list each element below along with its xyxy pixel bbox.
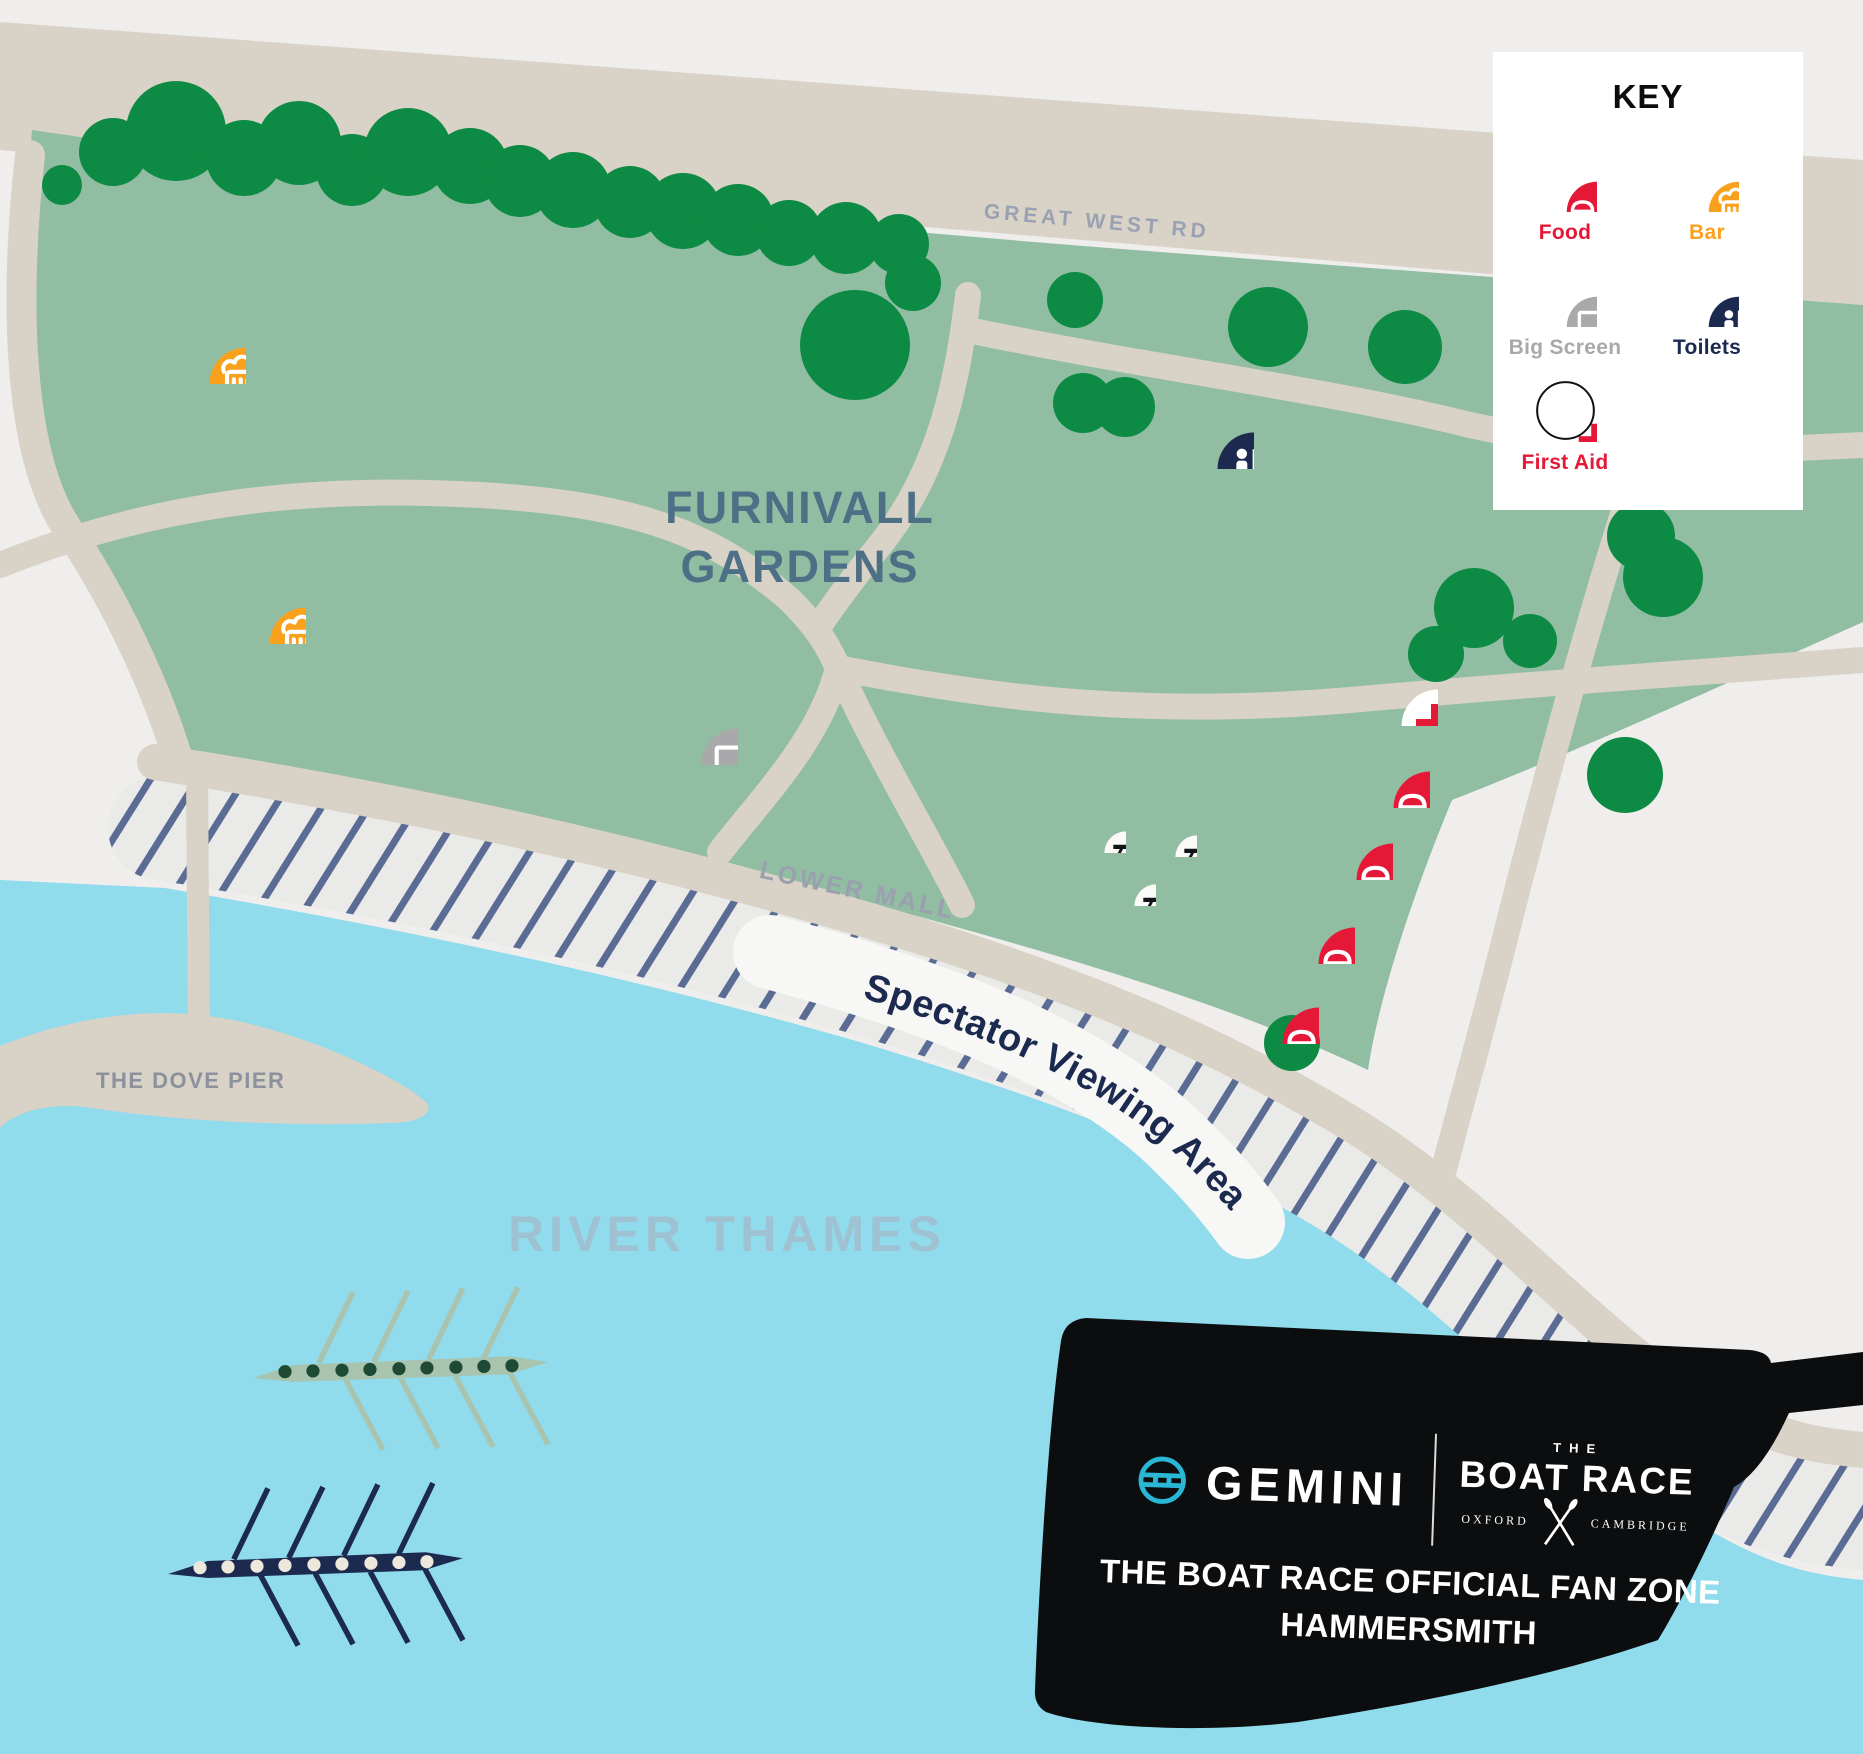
first-aid-map-marker [1362,650,1438,726]
furnivall-line2: GARDENS [560,537,1040,596]
key-label-first-aid: First Aid [1521,451,1608,475]
key-title: KEY [1493,78,1803,116]
food-map-marker [1243,968,1319,1044]
banner-divider [1431,1434,1437,1546]
gemini-wordmark: GEMINI [1205,1454,1410,1516]
key-label-food: Food [1539,221,1592,245]
picnic-map-marker [1109,859,1156,906]
food-icon [1534,149,1597,212]
boat-race-the: THE [1553,1439,1603,1456]
food-map-marker [1279,888,1355,964]
big-screen-icon [1534,264,1597,327]
key-item-first-aid: First Aid [1495,379,1635,475]
food-map-marker [1317,804,1393,880]
fan-zone-banner: GEMINI THE BOAT RACE OXFORD [1034,1322,1791,1718]
picnic-map-marker [1150,810,1197,857]
key-item-bar: Bar [1637,149,1777,245]
boat-race-logo: THE BOAT RACE OXFORD CAMBRIDGE [1457,1436,1696,1553]
big-screen-map-marker [662,689,738,765]
fan-zone-map: Spectator Viewing Area [0,0,1863,1754]
boat-race-cambridge: CAMBRIDGE [1590,1516,1689,1534]
gemini-logo: GEMINI [1132,1450,1410,1518]
boat-race-oxford: OXFORD [1461,1512,1529,1529]
crossed-oars-icon [1534,1496,1586,1550]
key-label-big-screen: Big Screen [1509,336,1622,360]
gemini-mark-icon [1132,1450,1192,1510]
key-item-big-screen: Big Screen [1495,264,1635,360]
toilets-icon [1676,264,1739,327]
picnic-map-marker [1079,806,1126,853]
food-map-marker [1354,732,1430,808]
key-label-bar: Bar [1689,221,1725,245]
dove-pier-label: THE DOVE PIER [96,1068,285,1094]
furnivall-gardens-label: FURNIVALL GARDENS [560,478,1040,597]
bar-map-marker [170,308,246,384]
key-item-toilets: Toilets [1637,264,1777,360]
toilets-map-marker [1178,393,1254,469]
bar-map-marker [230,568,306,644]
key-item-food: Food [1495,149,1635,245]
furnivall-line1: FURNIVALL [560,478,1040,537]
bar-icon [1676,149,1739,212]
first-aid-icon [1534,379,1597,442]
key-panel: KEY Food Bar Big Screen Toilets First Ai… [1493,52,1803,510]
key-label-toilets: Toilets [1673,336,1741,360]
banner-logos: GEMINI THE BOAT RACE OXFORD [1039,1420,1787,1558]
river-thames-label: RIVER THAMES [508,1205,946,1263]
